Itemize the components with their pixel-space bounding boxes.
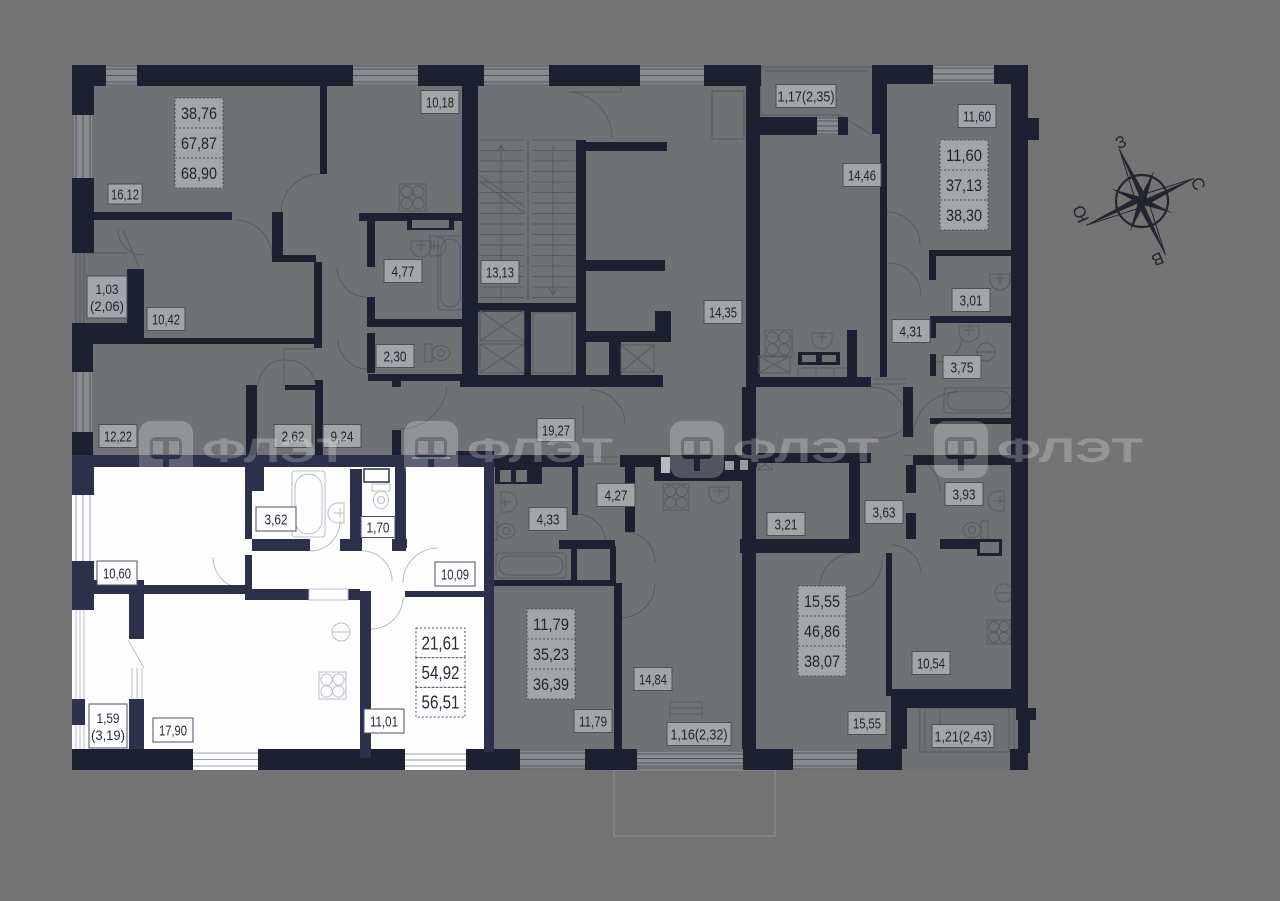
svg-text:4,33: 4,33 bbox=[537, 511, 560, 528]
svg-text:36,39: 36,39 bbox=[533, 675, 569, 694]
svg-text:15,55: 15,55 bbox=[853, 715, 881, 732]
svg-text:11,79: 11,79 bbox=[533, 615, 569, 634]
svg-text:3,93: 3,93 bbox=[953, 486, 976, 503]
svg-text:11,60: 11,60 bbox=[946, 146, 982, 165]
svg-text:11,01: 11,01 bbox=[370, 713, 398, 730]
svg-text:3,01: 3,01 bbox=[960, 292, 983, 309]
svg-text:67,87: 67,87 bbox=[181, 134, 217, 153]
svg-text:54,92: 54,92 bbox=[422, 663, 460, 683]
svg-text:37,13: 37,13 bbox=[946, 176, 982, 195]
svg-text:1,03: 1,03 bbox=[96, 281, 119, 297]
svg-text:38,07: 38,07 bbox=[804, 652, 840, 671]
svg-text:3,62: 3,62 bbox=[265, 511, 288, 528]
svg-text:1,21(2,43): 1,21(2,43) bbox=[935, 728, 992, 745]
svg-text:46,86: 46,86 bbox=[804, 622, 840, 641]
svg-text:4,31: 4,31 bbox=[900, 323, 923, 340]
svg-text:12,22: 12,22 bbox=[104, 428, 132, 445]
svg-text:14,46: 14,46 bbox=[848, 167, 876, 184]
svg-text:1,70: 1,70 bbox=[367, 519, 390, 536]
svg-text:(2,06): (2,06) bbox=[90, 298, 124, 314]
svg-text:3,63: 3,63 bbox=[873, 504, 896, 521]
svg-text:10,60: 10,60 bbox=[103, 565, 131, 582]
svg-text:10,42: 10,42 bbox=[152, 311, 180, 328]
svg-text:3,75: 3,75 bbox=[951, 359, 974, 376]
svg-text:ФЛЭТ: ФЛЭТ bbox=[733, 432, 879, 470]
svg-text:1,16(2,32): 1,16(2,32) bbox=[671, 726, 728, 743]
svg-text:35,23: 35,23 bbox=[533, 645, 569, 664]
svg-text:1,59: 1,59 bbox=[97, 710, 120, 726]
svg-text:14,84: 14,84 bbox=[639, 671, 667, 688]
svg-text:ФЛЭТ: ФЛЭТ bbox=[467, 432, 613, 470]
svg-text:1,17(2,35): 1,17(2,35) bbox=[778, 88, 835, 105]
svg-text:13,13: 13,13 bbox=[486, 264, 514, 281]
svg-text:14,35: 14,35 bbox=[709, 304, 737, 321]
svg-text:17,90: 17,90 bbox=[159, 722, 187, 739]
svg-text:ФЛЭТ: ФЛЭТ bbox=[997, 432, 1143, 470]
svg-text:11,60: 11,60 bbox=[963, 108, 991, 125]
svg-text:4,77: 4,77 bbox=[392, 263, 415, 280]
svg-text:68,90: 68,90 bbox=[181, 164, 217, 183]
svg-text:56,51: 56,51 bbox=[422, 693, 460, 713]
svg-text:ФЛЭТ: ФЛЭТ bbox=[202, 432, 348, 470]
svg-text:38,76: 38,76 bbox=[181, 104, 217, 123]
svg-text:10,09: 10,09 bbox=[441, 566, 469, 583]
svg-text:10,54: 10,54 bbox=[917, 655, 945, 672]
svg-text:15,55: 15,55 bbox=[804, 592, 840, 611]
svg-text:10,18: 10,18 bbox=[426, 94, 454, 111]
svg-text:21,61: 21,61 bbox=[422, 633, 460, 653]
svg-text:38,30: 38,30 bbox=[946, 206, 982, 225]
svg-text:16,12: 16,12 bbox=[111, 186, 139, 203]
svg-text:11,79: 11,79 bbox=[579, 713, 607, 730]
svg-text:2,30: 2,30 bbox=[384, 348, 407, 365]
svg-text:3,21: 3,21 bbox=[775, 516, 798, 533]
svg-text:(3,19): (3,19) bbox=[91, 727, 125, 743]
svg-text:4,27: 4,27 bbox=[605, 487, 628, 504]
